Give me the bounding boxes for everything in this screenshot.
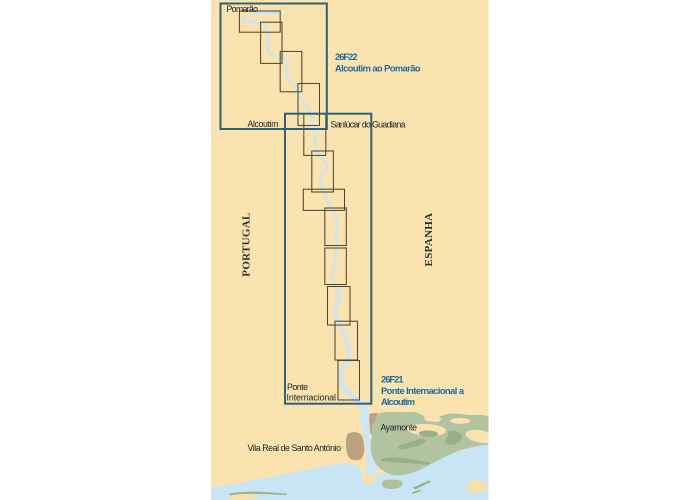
svg-text:Ayamonte: Ayamonte [381,423,418,433]
svg-text:Pomarão: Pomarão [227,4,259,14]
svg-text:PORTUGAL: PORTUGAL [240,212,252,276]
svg-text:26F22: 26F22 [335,52,358,62]
svg-text:Sanlúcar do Guadiana: Sanlúcar do Guadiana [331,120,406,130]
svg-text:ESPANHA: ESPANHA [423,213,435,267]
svg-text:26F21: 26F21 [381,375,404,385]
svg-text:Internacional: Internacional [287,393,337,403]
svg-text:Alcoutim ao Pomarão: Alcoutim ao Pomarão [335,64,421,74]
svg-text:Ponte: Ponte [287,382,308,392]
svg-text:Vila Real de Santo António: Vila Real de Santo António [248,443,342,453]
svg-text:Alcoutim: Alcoutim [248,119,279,129]
svg-text:Alcoutim: Alcoutim [381,397,415,407]
svg-text:Ponte Internacional a: Ponte Internacional a [381,386,465,396]
